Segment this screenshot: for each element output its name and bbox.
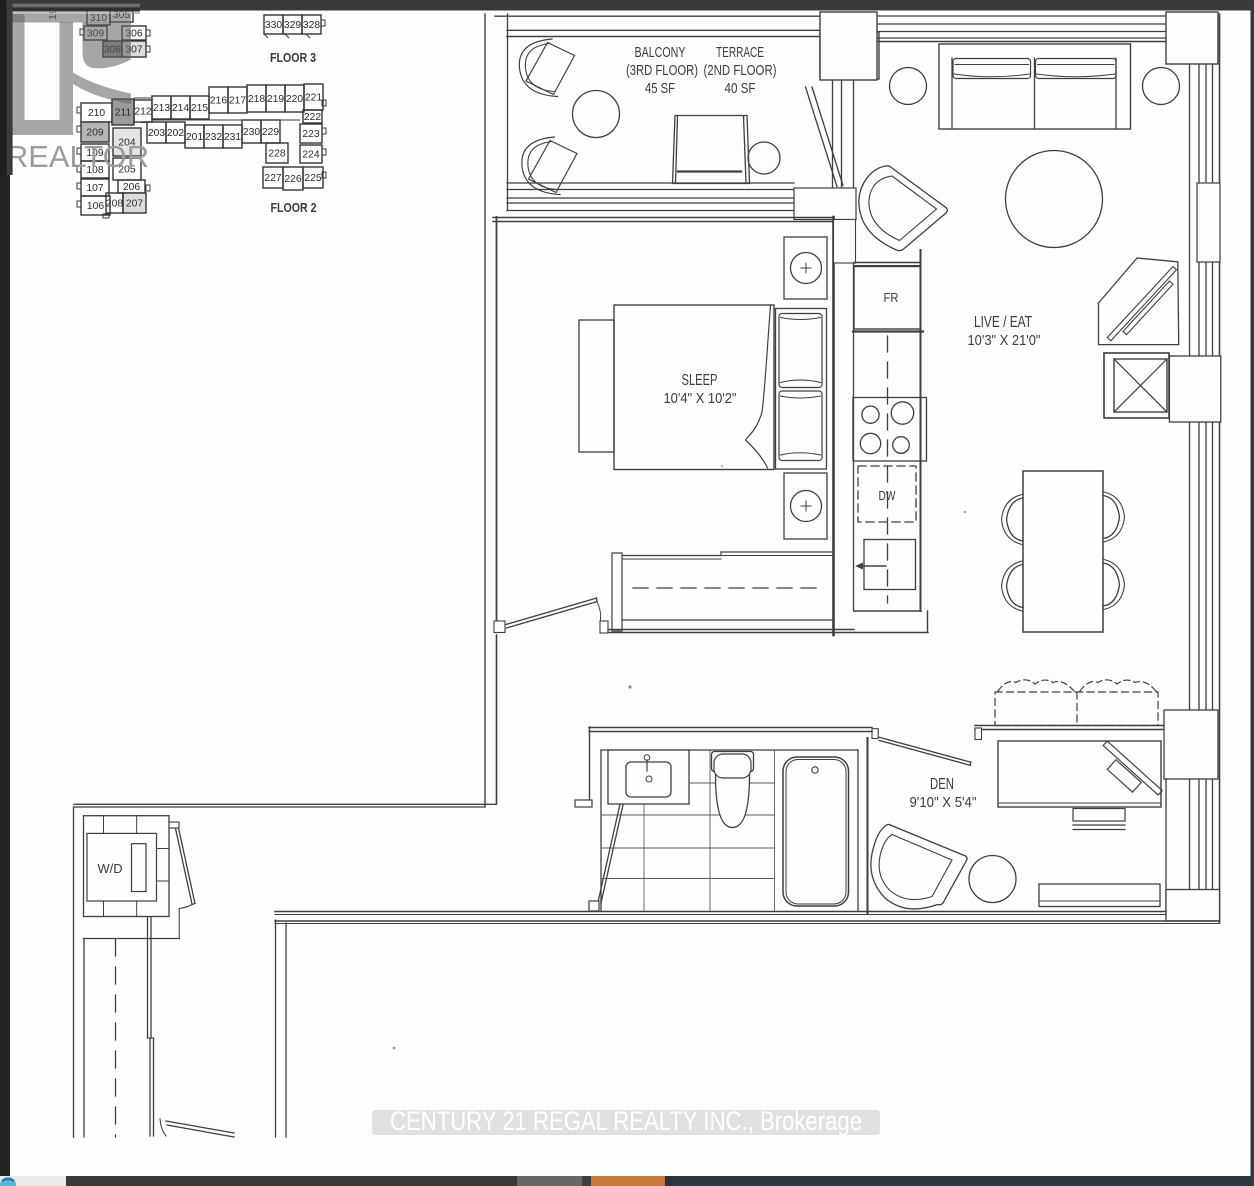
svg-text:FLOOR 3: FLOOR 3 [270, 50, 316, 65]
svg-text:229: 229 [262, 127, 279, 138]
svg-text:LIVE / EAT: LIVE / EAT [974, 314, 1032, 331]
svg-text:TERRACE: TERRACE [716, 44, 764, 61]
svg-text:213: 213 [153, 103, 170, 114]
svg-text:221: 221 [305, 93, 322, 104]
svg-text:216: 216 [210, 96, 227, 107]
svg-text:202: 202 [167, 128, 184, 139]
svg-text:231: 231 [224, 132, 241, 143]
svg-text:225: 225 [304, 173, 321, 184]
svg-text:328: 328 [303, 20, 320, 31]
svg-text:232: 232 [205, 132, 222, 143]
svg-text:(2ND FLOOR): (2ND FLOOR) [704, 62, 777, 79]
svg-text:214: 214 [172, 103, 189, 114]
svg-text:45 SF: 45 SF [645, 80, 675, 97]
svg-text:CENTURY 21 REGAL REALTY INC.,: CENTURY 21 REGAL REALTY INC., Brokerage [390, 1106, 862, 1136]
svg-text:329: 329 [284, 20, 301, 31]
svg-text:(3RD FLOOR): (3RD FLOOR) [626, 62, 698, 79]
svg-text:218: 218 [248, 94, 265, 105]
svg-text:211: 211 [115, 108, 132, 119]
svg-text:10'3" X 21'0": 10'3" X 21'0" [968, 332, 1041, 349]
svg-text:10'4" X 10'2": 10'4" X 10'2" [664, 390, 737, 407]
svg-text:208: 208 [106, 199, 123, 210]
svg-text:230: 230 [243, 127, 260, 138]
svg-text:106: 106 [87, 201, 104, 212]
svg-text:212: 212 [134, 107, 151, 118]
svg-text:203: 203 [148, 128, 165, 139]
svg-text:REALTOR: REALTOR [6, 139, 149, 174]
svg-text:107: 107 [86, 183, 103, 194]
svg-text:210: 210 [88, 108, 105, 119]
svg-text:223: 223 [302, 129, 319, 140]
svg-text:215: 215 [191, 103, 208, 114]
svg-text:40 SF: 40 SF [725, 80, 756, 97]
svg-text:9'10" X 5'4": 9'10" X 5'4" [910, 794, 977, 811]
svg-text:224: 224 [302, 150, 319, 161]
svg-text:219: 219 [267, 94, 284, 105]
svg-text:SLEEP: SLEEP [682, 372, 718, 389]
svg-text:FLOOR 2: FLOOR 2 [271, 200, 317, 215]
svg-text:217: 217 [229, 96, 246, 107]
svg-text:220: 220 [286, 94, 303, 105]
svg-text:W/D: W/D [98, 862, 123, 876]
svg-text:206: 206 [123, 182, 140, 193]
svg-text:DW: DW [879, 489, 896, 503]
svg-text:BALCONY: BALCONY [635, 44, 686, 61]
svg-text:227: 227 [264, 173, 281, 184]
svg-text:201: 201 [186, 132, 203, 143]
svg-text:228: 228 [268, 149, 285, 160]
svg-text:207: 207 [126, 199, 143, 210]
svg-text:222: 222 [304, 112, 321, 123]
svg-text:330: 330 [265, 20, 282, 31]
svg-text:209: 209 [86, 128, 103, 139]
svg-text:226: 226 [284, 174, 301, 185]
svg-text:DEN: DEN [930, 776, 954, 793]
svg-text:FR: FR [884, 291, 899, 305]
